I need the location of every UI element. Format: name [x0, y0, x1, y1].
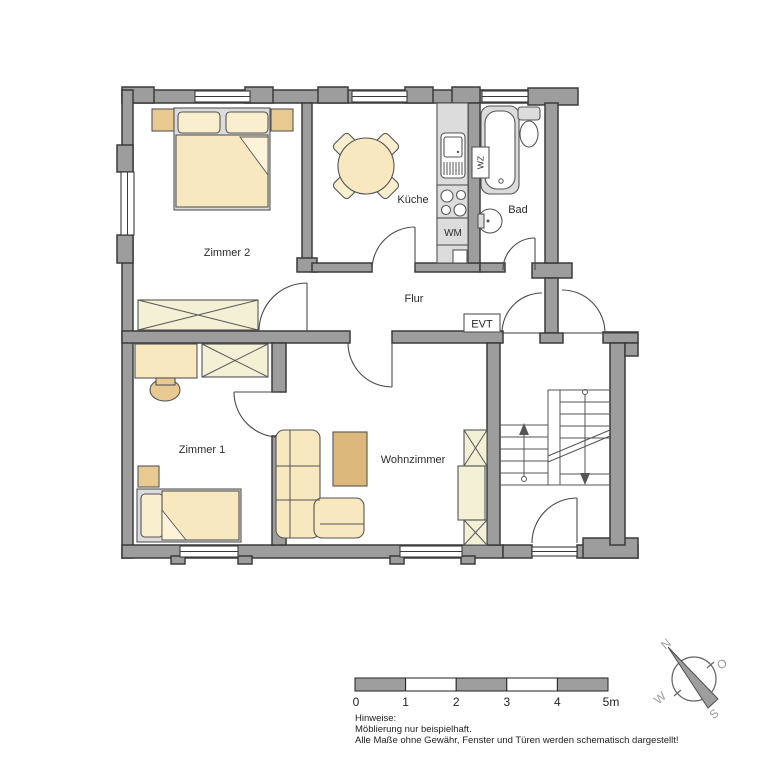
window-bottom-zimmer1 [180, 546, 238, 557]
wardrobe-zimmer2 [138, 300, 258, 330]
stove [437, 185, 468, 218]
door-zimmer1 [234, 392, 279, 437]
window-top-bad [482, 91, 528, 102]
compass-needle [668, 647, 718, 708]
window-top-zimmer2 [195, 91, 250, 102]
compass-n: N [658, 636, 674, 652]
floorplan-page: WM WZ [0, 0, 757, 757]
kueche-furniture: WM [332, 103, 468, 263]
notes-heading: Hinweise: [355, 713, 396, 724]
scale-bar: 0 1 2 3 4 5m [353, 678, 620, 709]
dining-table [332, 132, 400, 200]
door-neighbor [562, 290, 605, 333]
scale-tick-2: 2 [453, 695, 460, 709]
sink [441, 133, 465, 178]
label-wohnzimmer: Wohnzimmer [381, 454, 446, 466]
scale-tick-1: 1 [402, 695, 409, 709]
floorplan-svg: WM WZ [0, 0, 757, 757]
stairs-down-arrow [580, 390, 590, 486]
window-top-kueche [352, 91, 407, 102]
kitchen-duct [453, 250, 467, 263]
scale-tick-4: 4 [554, 695, 561, 709]
door-kueche [372, 227, 415, 270]
wz-box: WZ [472, 147, 489, 178]
wohnzimmer-furniture [276, 430, 487, 545]
notes-line2: Alle Maße ohne Gewähr, Fenster und Türen… [355, 735, 679, 746]
scale-tick-5: 5m [603, 695, 620, 709]
zimmer1-furniture [135, 344, 268, 542]
coffee-table [333, 432, 367, 486]
door-bad [503, 238, 535, 270]
wall-unit [458, 430, 487, 545]
compass-w: W [651, 689, 669, 707]
door-stairwell-exit [532, 498, 577, 543]
evt-box: EVT [464, 314, 500, 332]
label-zimmer2: Zimmer 2 [204, 247, 250, 259]
double-bed [174, 108, 270, 210]
stairwell-exit-threshold [532, 547, 577, 556]
wz-label: WZ [476, 156, 486, 169]
window-left-zimmer2 [121, 172, 134, 235]
single-bed [137, 489, 241, 542]
label-bad: Bad [508, 204, 528, 216]
notes-line1: Möblierung nur beispielhaft. [355, 724, 472, 735]
evt-label: EVT [471, 319, 493, 331]
toilet [518, 107, 540, 147]
washing-machine: WM [437, 218, 468, 245]
bathroom-sink [478, 209, 502, 233]
nightstand-right [271, 109, 293, 131]
kitchen-counter: WM [437, 103, 468, 263]
label-zimmer1: Zimmer 1 [179, 444, 225, 456]
label-flur: Flur [405, 293, 424, 305]
compass-o: O [714, 656, 730, 673]
scale-tick-3: 3 [503, 695, 510, 709]
door-wohnzimmer [348, 343, 392, 387]
label-kueche: Küche [397, 194, 428, 206]
scale-tick-0: 0 [353, 695, 360, 709]
zimmer2-furniture [138, 108, 293, 330]
compass-s: S [706, 706, 721, 722]
compass-rose: N O W S [651, 636, 730, 722]
window-bottom-wohnzimmer [400, 546, 462, 557]
door-zimmer2 [259, 283, 307, 331]
nightstand-left [152, 109, 174, 131]
staircase [500, 390, 610, 486]
side-table [138, 466, 159, 487]
wardrobe-zimmer1 [202, 344, 268, 377]
desk [135, 344, 197, 401]
notes: Hinweise: Möblierung nur beispielhaft. A… [355, 713, 679, 746]
bad-furniture: WZ [472, 106, 540, 233]
door-apartment-entrance [502, 293, 542, 333]
wm-label: WM [444, 228, 462, 239]
